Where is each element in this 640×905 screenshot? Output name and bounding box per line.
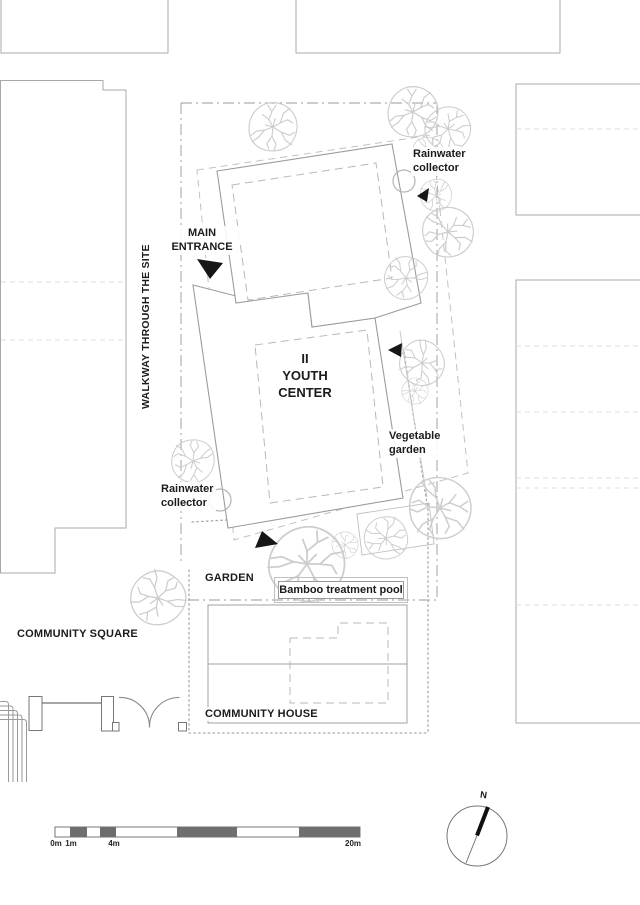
tree-icon xyxy=(249,103,297,151)
gate-leaf-end xyxy=(179,723,187,732)
gate-leaf-end xyxy=(113,723,120,732)
building-right-upper xyxy=(516,84,640,215)
walkway-label: WALKWAY THROUGH THE SITE xyxy=(140,249,154,409)
youth-center-lower-building xyxy=(193,285,403,528)
compass-icon xyxy=(447,806,507,866)
tree-icon xyxy=(398,374,431,407)
tree-icon xyxy=(416,200,480,264)
building-top-left xyxy=(1,0,168,53)
community-house xyxy=(208,605,407,723)
building-top-middle xyxy=(296,0,560,53)
garden-label: GARDEN xyxy=(203,571,256,585)
community-square-label: COMMUNITY SQUARE xyxy=(17,627,138,641)
main-entrance-label: MAINENTRANCE xyxy=(164,226,240,255)
gate xyxy=(29,697,187,732)
tree-icon xyxy=(388,87,438,137)
main-entrance-arrow-icon xyxy=(197,259,223,279)
scale-tick-4m: 4m xyxy=(108,839,120,848)
vegetable-garden-label: Vegetablegarden xyxy=(387,429,442,458)
scale-tick-1m: 1m xyxy=(65,839,77,848)
rainwater-collector-label-top: Rainwatercollector xyxy=(411,147,468,176)
tree-icon xyxy=(172,440,215,483)
tree-icon xyxy=(392,333,453,394)
site-plan-page: WALKWAY THROUGH THE SITE MAINENTRANCE Ra… xyxy=(0,0,640,905)
gate-post xyxy=(102,697,114,732)
bamboo-pool-structure xyxy=(357,503,434,555)
scale-bar xyxy=(55,827,360,837)
scale-tick-0m: 0m xyxy=(50,839,62,848)
rainwater-collector-label-bottom: Rainwatercollector xyxy=(159,482,216,511)
site-plan-drawing xyxy=(0,0,640,905)
bamboo-treatment-pool-label: Bamboo treatment pool xyxy=(278,581,404,599)
square-corner-steps xyxy=(0,702,27,783)
youth-center-label: IIYOUTHCENTER xyxy=(255,351,355,402)
tree-icon xyxy=(358,511,413,566)
scale-tick-20m: 20m xyxy=(345,839,361,848)
building-left xyxy=(1,81,127,574)
youth-center-buildings xyxy=(193,144,421,528)
vegetable-garden-arrow-icon xyxy=(388,343,402,357)
community-house-label: COMMUNITY HOUSE xyxy=(203,707,320,721)
tree-icon xyxy=(257,513,358,614)
rainwater-top-arrow-icon xyxy=(417,188,429,202)
gate-door-swing-arcs xyxy=(119,697,180,727)
gate-post xyxy=(29,697,42,731)
tree-icon xyxy=(120,560,196,636)
